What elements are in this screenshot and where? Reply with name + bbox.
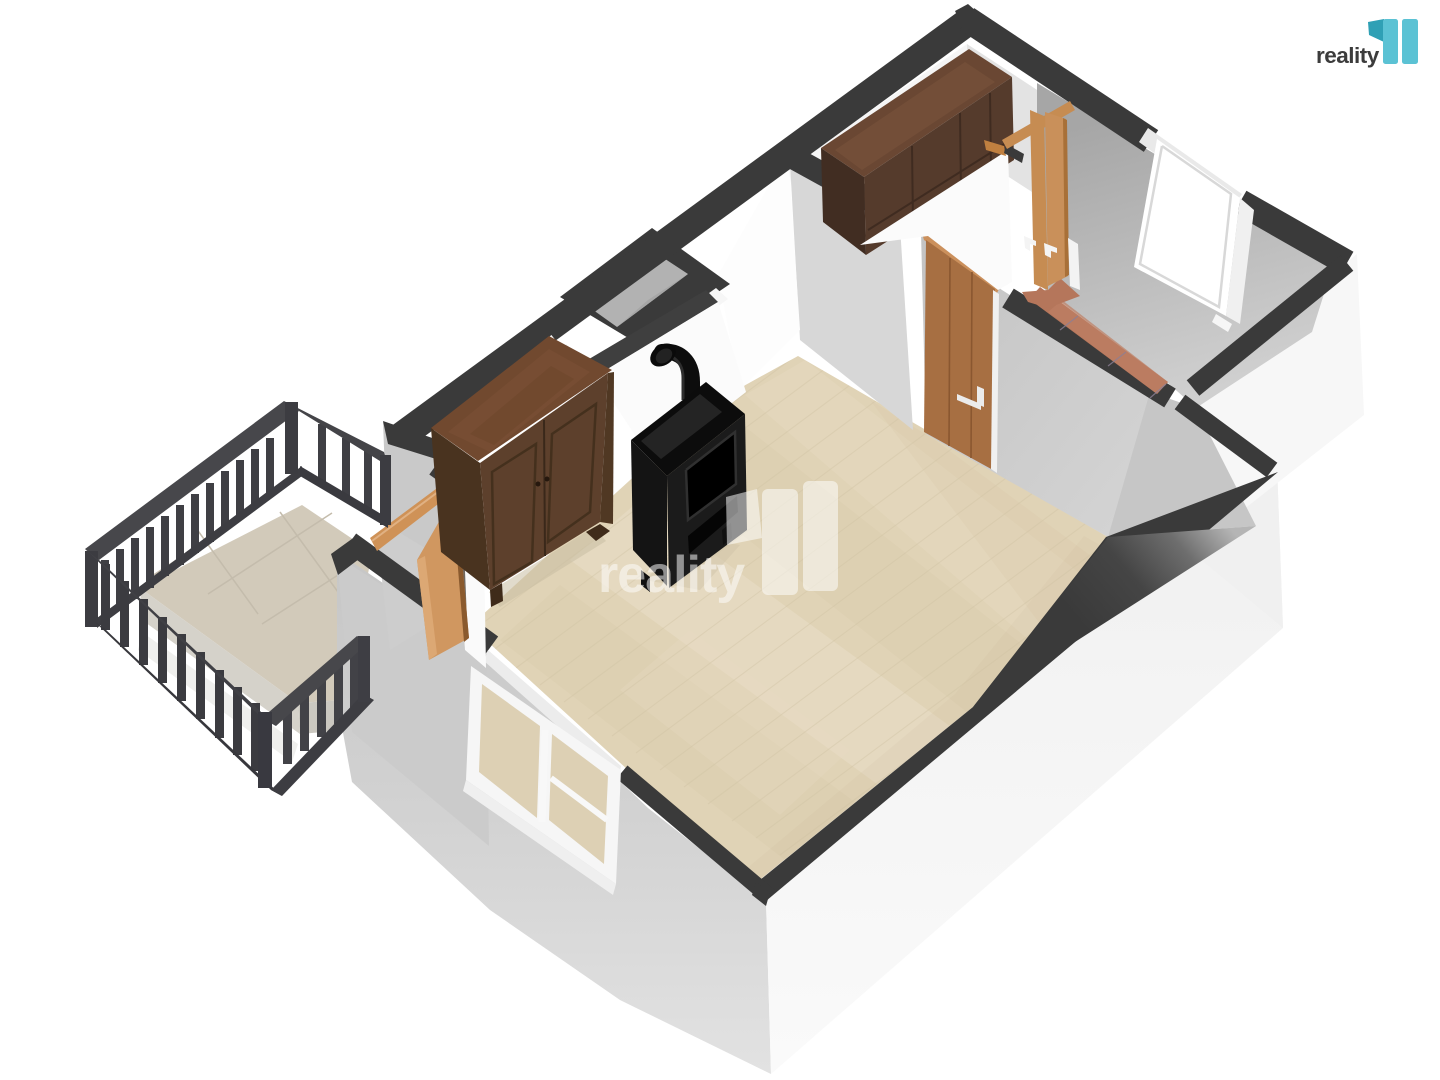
svg-text:reality: reality [1316,43,1380,68]
svg-text:reality: reality [598,546,745,604]
